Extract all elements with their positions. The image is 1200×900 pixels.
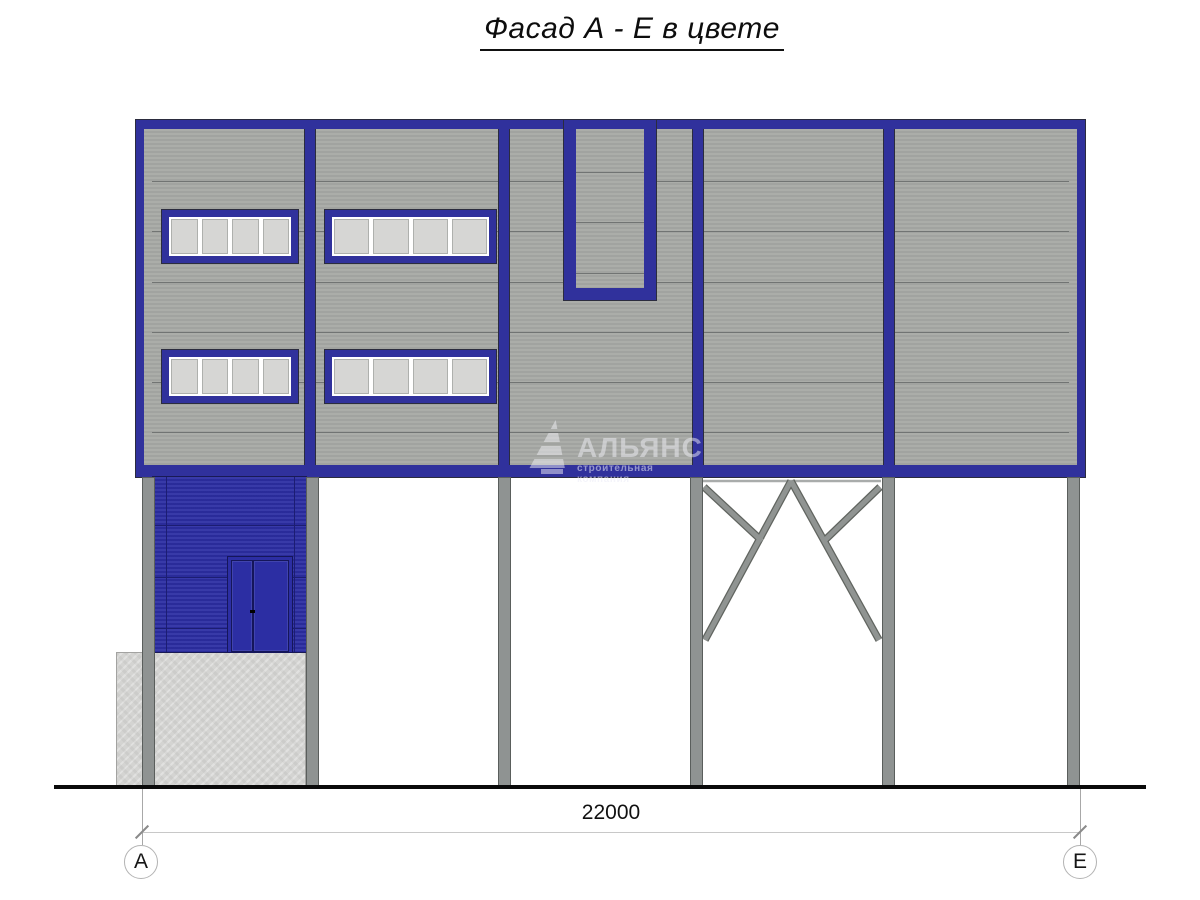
- panel-joint: [166, 477, 167, 652]
- window-pane: [171, 219, 198, 254]
- steel-column: [690, 477, 703, 786]
- ground-line: [54, 785, 1146, 789]
- window-pane: [373, 359, 408, 394]
- facade-drawing-canvas: Фасад А - Е в цвете: [0, 0, 1200, 900]
- ribbon-window: [162, 210, 298, 263]
- facade-upper-body: [136, 120, 1085, 477]
- facade-mullion: [883, 129, 895, 465]
- window-pane: [202, 219, 229, 254]
- door-leaf-left: [231, 560, 253, 652]
- ribbon-window: [325, 350, 496, 403]
- window-pane: [373, 219, 408, 254]
- entrance-door: [227, 556, 293, 653]
- window-pane: [452, 219, 487, 254]
- window-pane: [452, 359, 487, 394]
- drawing-title: Фасад А - Е в цвете: [480, 12, 784, 51]
- door-leaf-right: [253, 560, 289, 652]
- window-pane: [263, 359, 290, 394]
- roof-recess-channel: [564, 120, 656, 300]
- grid-bubble-a: А: [124, 845, 158, 879]
- steel-column: [498, 477, 511, 786]
- window-glazing: [169, 357, 291, 396]
- window-glazing: [332, 357, 489, 396]
- window-pane: [334, 359, 369, 394]
- ribbon-window: [325, 210, 496, 263]
- steel-column: [142, 477, 155, 786]
- window-pane: [263, 219, 290, 254]
- title-row: Фасад А - Е в цвете: [0, 12, 1200, 51]
- ribbon-window: [162, 350, 298, 403]
- extension-line: [1080, 789, 1081, 845]
- door-handle: [250, 610, 255, 613]
- grid-bubble-e: Е: [1063, 845, 1097, 879]
- window-pane: [413, 219, 448, 254]
- facade-mullion: [498, 129, 510, 465]
- roof-recess-panel: [576, 129, 644, 288]
- facade-mullion: [304, 129, 316, 465]
- window-pane: [232, 219, 259, 254]
- window-pane: [413, 359, 448, 394]
- window-pane: [202, 359, 229, 394]
- steel-column: [306, 477, 319, 786]
- panel-seam: [152, 432, 1069, 433]
- window-pane: [334, 219, 369, 254]
- window-pane: [171, 359, 198, 394]
- facade-mullion: [692, 129, 704, 465]
- panel-seam: [153, 525, 306, 526]
- panel-seam: [576, 172, 644, 173]
- door-leaves: [231, 560, 289, 652]
- steel-column: [1067, 477, 1080, 786]
- panel-joint: [294, 477, 295, 652]
- steel-column: [882, 477, 895, 786]
- dimension-line: [142, 832, 1080, 833]
- window-pane: [232, 359, 259, 394]
- panel-seam: [576, 222, 644, 223]
- extension-line: [142, 789, 143, 845]
- dimension-value: 22000: [521, 801, 701, 825]
- window-glazing: [169, 217, 291, 256]
- panel-seam: [576, 273, 644, 274]
- panel-seam: [152, 332, 1069, 333]
- window-glazing: [332, 217, 489, 256]
